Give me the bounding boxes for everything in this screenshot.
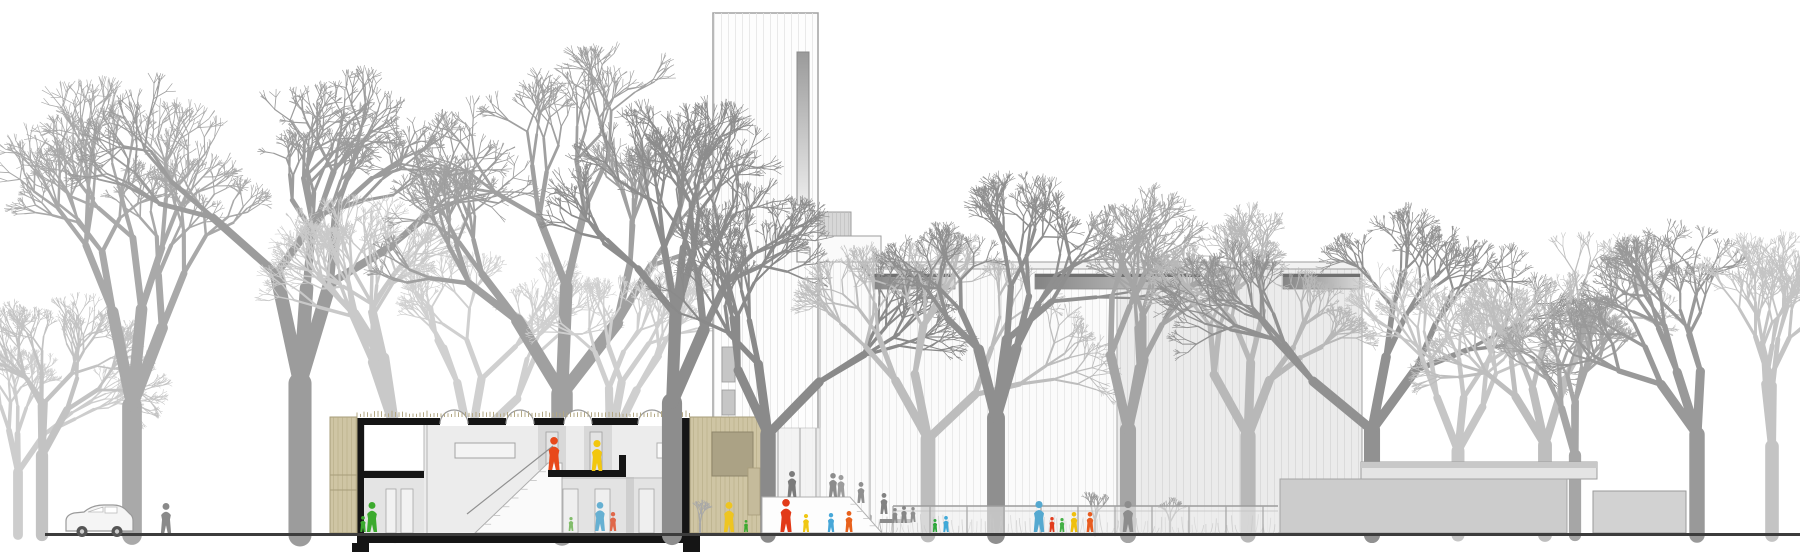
elevation-drawing-canvas [0,0,1800,557]
terrain [45,533,1800,536]
figure-head [611,512,615,516]
figure-head [163,503,170,510]
tower-louver-window [722,390,735,415]
door-opening [639,489,654,533]
figure-head [1035,501,1042,508]
figure-head [902,506,906,510]
figure-head [1124,501,1131,508]
foundation-footing [352,543,369,552]
figure-head [838,475,843,480]
figure-head [597,502,604,509]
figure-head [745,520,748,523]
car-wheel-hub [115,529,119,533]
figure-head [1050,517,1053,520]
tower-louver-window [722,347,735,382]
figure-head [882,493,887,498]
clerestory-lintel [1283,274,1360,277]
vaulted-skylight [506,410,534,424]
fence-glass [893,506,1278,533]
foundation-footing [683,543,700,552]
figure-head [789,471,795,477]
figure-head [859,482,864,487]
figure-head [361,516,365,520]
annex-right-block [1593,491,1686,533]
tree-branches [41,403,67,456]
car-side-window [105,507,117,513]
car-wheel-hub [80,529,84,533]
door-opening [401,489,413,533]
annex-front-wall [1280,479,1567,533]
mezzanine-slab [548,470,626,477]
figure-head [934,519,937,522]
figure-head [782,499,790,507]
tree-branches [595,344,659,391]
hall-long-window [455,443,515,458]
wood-annex-side-strip [748,468,760,515]
ground-line [45,533,1800,536]
tree-branches [1437,398,1483,451]
tree-branches [1765,379,1773,446]
figure-head [893,508,896,511]
architectural-section-elevation [0,0,1800,557]
sectioned-community-building [330,410,700,552]
figure-head [830,473,836,479]
upper-left-room [364,424,424,471]
tower-slot-window [797,52,809,205]
tree-branches [373,358,395,429]
tree-branches [1516,380,1565,445]
tree-branches [1562,401,1576,455]
wood-annex-inset-window [712,432,753,476]
figure-body [161,512,171,533]
tree-branches [437,340,535,399]
tree-branches [276,274,330,384]
figure-head [369,502,376,509]
door-opening [386,489,396,533]
figure-head [804,514,808,518]
mezzanine-upstand [619,455,626,470]
figure-head [1072,512,1077,517]
figure-head [726,502,733,509]
figure-head [550,437,558,445]
figure-head [1088,512,1093,517]
lower-room-wall [626,477,634,533]
section-left-wall [357,418,364,533]
figure-head [829,513,833,517]
figure-head [944,516,948,520]
linking-volumes [818,212,881,262]
tree-branches [1661,371,1700,434]
annex-roof-edge-band [1361,462,1597,468]
figure-head [593,440,600,447]
tree-branches [672,314,704,403]
person-figure [161,503,171,533]
figure-head [1060,518,1063,521]
interior-floor-slab [357,471,424,478]
figure-head [847,511,852,516]
figure-head [911,507,914,510]
glass-fence [893,506,1278,533]
figure-head [569,517,572,520]
